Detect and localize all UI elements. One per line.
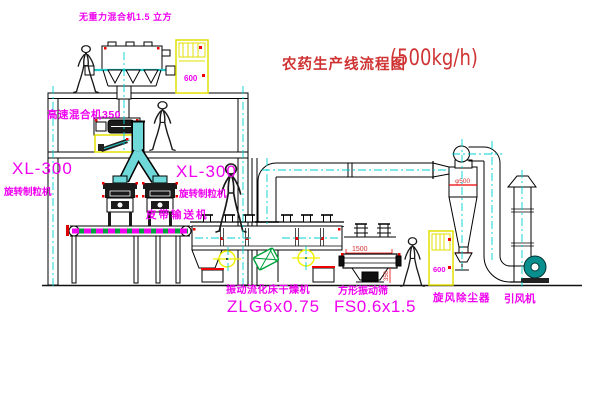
control-cabinet-2: 600 xyxy=(429,231,453,285)
label-gravity-mixer: 无重力混合机1.5 立方 xyxy=(79,13,172,22)
label-granulator-left-model: XL-300 xyxy=(12,159,73,179)
control-cabinet-1: 600 xyxy=(176,40,208,93)
label-granulator-left-name: 旋转制粒机 xyxy=(4,188,52,198)
diagram-title: 农药生产线流程图 xyxy=(282,53,406,74)
label-dryer-model: ZLG6x0.75 xyxy=(227,297,320,317)
cabinet2-marking: 600 xyxy=(433,265,446,274)
sieve-length-dim: 1500 xyxy=(352,246,368,253)
label-dryer-name: 振动流化床干燥机 xyxy=(226,286,310,296)
label-granulator-right-name: 旋转制粒机 xyxy=(179,190,227,200)
cyclone-diameter-dim: φ500 xyxy=(455,178,470,185)
label-high-speed-mixer: 高速混合机350 xyxy=(47,110,121,121)
label-belt-conveyor: 皮带输送机 xyxy=(146,210,209,221)
diagram-title-capacity: (500kg/h) xyxy=(390,46,478,71)
label-granulator-right-model: XL-300 xyxy=(176,162,237,182)
belt-conveyor xyxy=(66,225,191,283)
label-sieve-name: 方形振动筛 xyxy=(338,287,388,297)
cad-flow-diagram: 600 xyxy=(0,0,600,403)
sieve-height-dim: 350 xyxy=(384,270,390,281)
label-cyclone: 旋风除尘器 xyxy=(433,293,491,304)
cabinet1-marking: 600 xyxy=(184,74,198,83)
fluid-bed-dryer xyxy=(190,215,344,282)
label-sieve-model: FS0.6x1.5 xyxy=(334,297,416,317)
label-fan: 引风机 xyxy=(504,294,536,305)
granulator-left xyxy=(102,176,138,226)
vibrating-sieve: 1500 350 xyxy=(339,224,401,283)
induced-draft-fan xyxy=(521,256,549,283)
person-figure xyxy=(150,102,175,151)
person-figure xyxy=(401,238,424,287)
